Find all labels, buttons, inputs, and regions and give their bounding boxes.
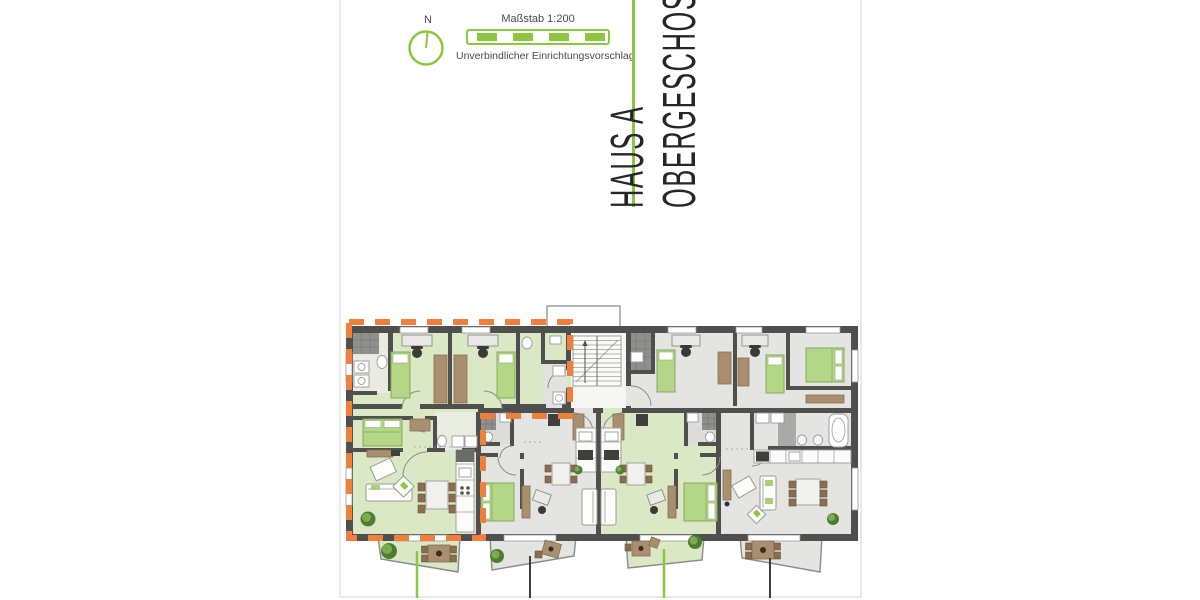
kitchen-sink	[605, 432, 618, 441]
sink	[771, 413, 784, 423]
sink	[553, 366, 565, 376]
sofa	[601, 489, 616, 525]
toilet	[438, 436, 447, 447]
toilet	[814, 435, 823, 445]
brochure-page: N Maßstab 1:200 Unverbindlicher Einricht…	[0, 0, 1200, 600]
stove	[578, 450, 593, 460]
dining-table	[627, 463, 645, 485]
wardrobe	[434, 355, 447, 403]
shelf	[668, 486, 676, 518]
floor-plan-drawing	[0, 0, 1200, 600]
dining-table	[796, 479, 820, 505]
sink	[687, 413, 698, 422]
dining-table	[426, 481, 448, 509]
office-chair	[478, 348, 488, 358]
toilet	[377, 356, 387, 369]
stove	[604, 450, 619, 460]
sink	[465, 436, 477, 447]
kitchen-counter	[456, 450, 474, 532]
leader-lines	[417, 549, 770, 598]
wardrobe	[410, 419, 430, 431]
wardrobe	[718, 352, 731, 384]
tv	[391, 450, 400, 456]
sideboard	[806, 395, 844, 403]
desk	[402, 335, 432, 346]
kitchen-sink	[459, 468, 471, 477]
sideboard	[723, 470, 731, 500]
dining-table	[552, 463, 570, 485]
kitchen-sink	[789, 452, 800, 461]
sink	[452, 436, 464, 447]
sofa	[582, 489, 597, 525]
wardrobe	[454, 355, 467, 403]
desk	[468, 335, 498, 346]
toilet	[706, 432, 715, 442]
sink	[631, 352, 643, 362]
wardrobe	[738, 358, 749, 386]
desk	[742, 335, 768, 346]
shelf	[522, 486, 530, 518]
kitchen-sink	[579, 432, 592, 441]
stairwell	[573, 336, 621, 386]
sink	[756, 413, 769, 423]
fridge	[456, 450, 474, 462]
stove	[756, 452, 769, 462]
toilet	[522, 337, 532, 349]
sink	[550, 336, 561, 344]
sideboard	[367, 450, 393, 457]
washer	[636, 414, 648, 426]
office-chair	[412, 348, 422, 358]
desk	[672, 335, 700, 346]
washer	[553, 392, 565, 404]
toilet	[798, 435, 807, 445]
